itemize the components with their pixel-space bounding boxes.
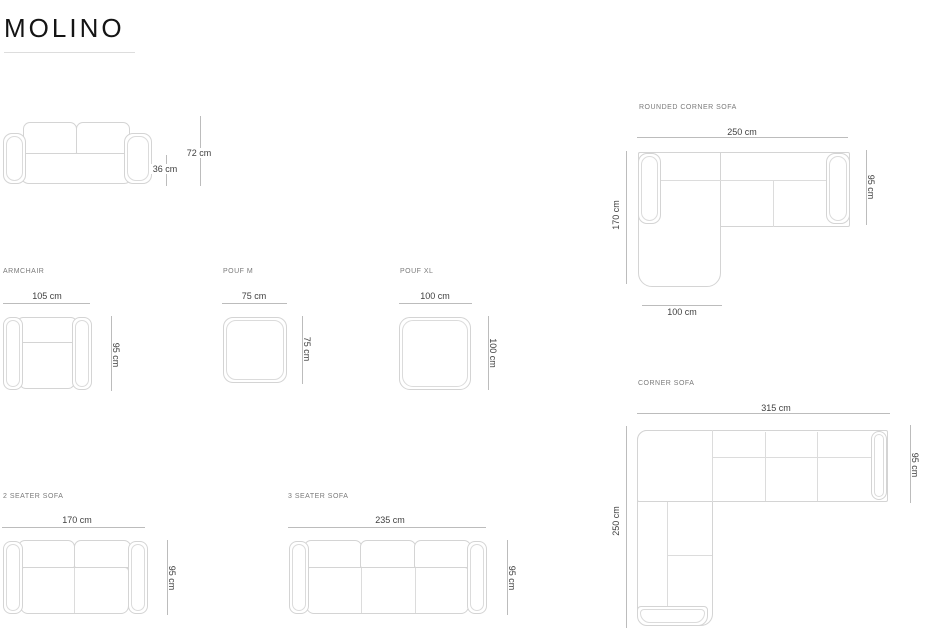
total-height-dimension: 72 cm (184, 148, 215, 158)
corner-sofa-label: CORNER SOFA (638, 380, 694, 387)
pouf-m-label: POUF M (223, 268, 253, 275)
dimension-line (637, 413, 890, 414)
rounded-corner-sofa-label: ROUNDED CORNER SOFA (639, 104, 737, 111)
pouf-body (223, 317, 287, 383)
armchair-label: ARMCHAIR (3, 268, 44, 275)
dimension-line (222, 303, 287, 304)
length-dimension: 170 cm (611, 200, 621, 230)
depth-dimension: 95 cm (866, 175, 876, 200)
back-cushion (17, 317, 77, 344)
back-cushion-right (76, 122, 130, 155)
armrest-bottom (637, 606, 708, 626)
width-dimension: 100 cm (420, 291, 450, 301)
dimension-line (2, 527, 145, 528)
back-cushion-left (304, 540, 362, 568)
seat-height-dimension: 36 cm (150, 164, 181, 174)
chaise-cushion-seam (667, 555, 712, 556)
chaise-width-dimension: 100 cm (667, 307, 697, 317)
seat-seam (361, 568, 362, 613)
length-dimension: 250 cm (611, 506, 621, 536)
armrest-right (826, 153, 850, 224)
armrest-left (638, 153, 661, 224)
title-underline (4, 52, 135, 53)
pouf-body (399, 317, 471, 390)
molino-dimension-sheet: MOLINO 72 cm 36 cm ROUNDED CORNER SOFA 2… (0, 0, 930, 630)
two-seater-sofa-label: 2 SEATER SOFA (3, 493, 63, 500)
backrest-seam (712, 457, 872, 458)
back-cushion-left (18, 540, 75, 568)
dimension-line (626, 426, 627, 628)
dimension-line (637, 137, 848, 138)
armrest-right (467, 541, 487, 614)
dimension-line (399, 303, 472, 304)
back-cushion-right (74, 540, 131, 568)
cushion-seam (773, 180, 774, 227)
depth-dimension: 95 cm (111, 343, 121, 368)
armrest-right (871, 431, 887, 500)
width-dimension: 105 cm (32, 291, 62, 301)
armrest-right (128, 541, 148, 614)
depth-dimension: 95 cm (910, 453, 920, 478)
armrest-left (3, 541, 23, 614)
width-dimension: 235 cm (375, 515, 405, 525)
cushion-seam (765, 432, 766, 501)
dimension-line (3, 303, 90, 304)
width-dimension: 250 cm (727, 127, 757, 137)
dimension-line (288, 527, 486, 528)
armrest-left (3, 133, 26, 184)
sofa-body (637, 430, 888, 502)
width-dimension: 75 cm (242, 291, 267, 301)
back-cushion-left (23, 122, 77, 155)
pouf-xl-label: POUF XL (400, 268, 433, 275)
width-dimension: 170 cm (62, 515, 92, 525)
armrest-right (124, 133, 152, 184)
seat-seam (74, 568, 75, 613)
width-dimension: 315 cm (761, 403, 791, 413)
armrest-left (3, 317, 23, 390)
back-cushion-right (414, 540, 471, 568)
three-seater-sofa-label: 3 SEATER SOFA (288, 493, 348, 500)
depth-dimension: 75 cm (302, 337, 312, 362)
depth-dimension: 100 cm (488, 338, 498, 368)
seat-base (306, 567, 469, 614)
backrest-seam (660, 180, 826, 181)
corner-seam (712, 430, 713, 502)
dimension-line (642, 305, 722, 306)
dimension-line (626, 151, 627, 284)
seat-base (20, 153, 133, 184)
seat-seam (415, 568, 416, 613)
page-title: MOLINO (4, 13, 125, 44)
cushion-seam (817, 432, 818, 501)
armrest-left (289, 541, 309, 614)
depth-dimension: 95 cm (507, 566, 517, 591)
back-cushion-middle (360, 540, 416, 568)
armrest-right (72, 317, 92, 390)
depth-dimension: 95 cm (167, 566, 177, 591)
seat-cushion (19, 342, 75, 389)
